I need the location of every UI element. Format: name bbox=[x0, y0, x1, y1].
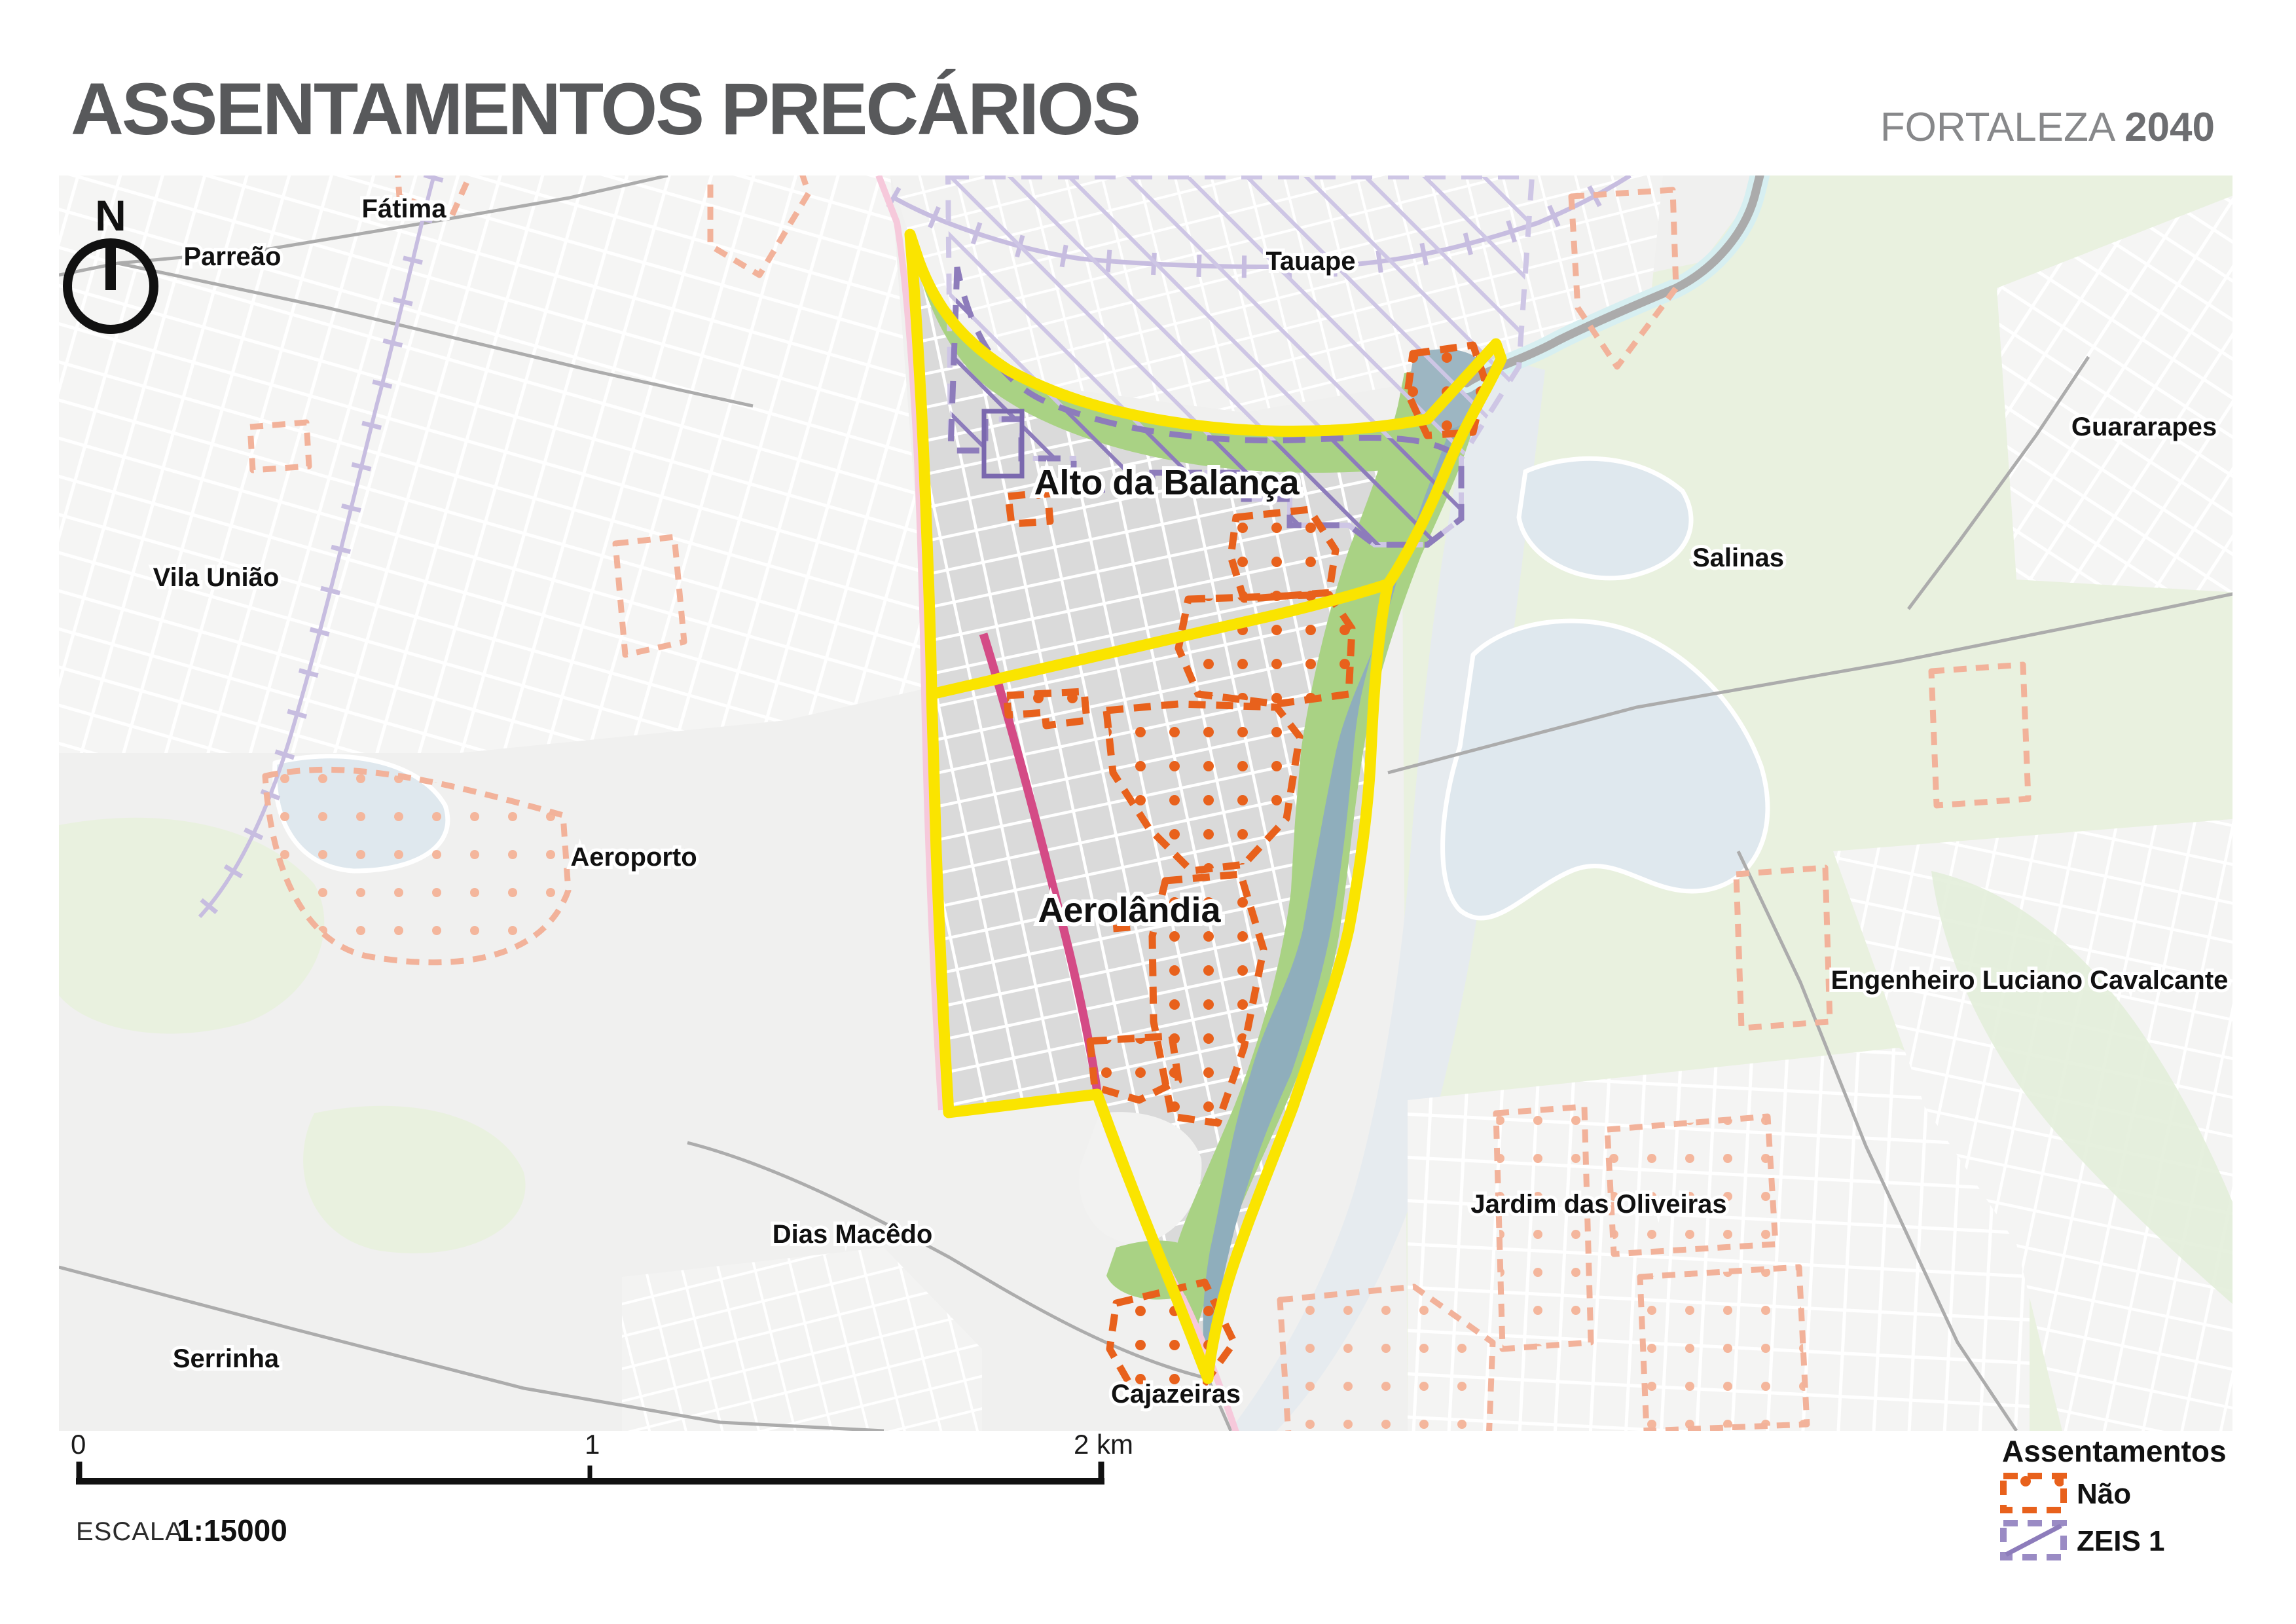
map-label-jardim-das-oliveiras: Jardim das Oliveiras bbox=[1470, 1190, 1726, 1219]
legend-title: Assentamentos bbox=[2002, 1434, 2227, 1468]
legend-swatch-nao bbox=[2003, 1476, 2064, 1510]
brand-name: FORTALEZA bbox=[1880, 105, 2124, 150]
scale-bar: 0 1 2 km ESCALA 1:15000 bbox=[71, 1429, 1133, 1547]
map-label-tauape: Tauape bbox=[1266, 247, 1355, 276]
map-label-cajazeiras: Cajazeiras bbox=[1111, 1380, 1241, 1409]
map-label-aeroporto: Aeroporto bbox=[570, 843, 697, 872]
map-label-parreao: Parreão bbox=[184, 242, 282, 271]
map-label-salinas: Salinas bbox=[1692, 544, 1784, 572]
scale-label-1: 1 bbox=[585, 1429, 600, 1460]
map-label-guararapes: Guararapes bbox=[2071, 413, 2217, 441]
brand-year: 2040 bbox=[2124, 105, 2215, 150]
legend: Assentamentos Não ZEIS 1 bbox=[2002, 1434, 2227, 1557]
page-title: ASSENTAMENTOS PRECÁRIOS bbox=[71, 68, 1139, 150]
scale-label-0: 0 bbox=[71, 1429, 86, 1460]
scale-label-2km: 2 km bbox=[1074, 1429, 1133, 1460]
legend-label-nao: Não bbox=[2077, 1478, 2131, 1510]
map-label-vila-uniao: Vila União bbox=[153, 563, 280, 592]
legend-swatch-zeis1 bbox=[2003, 1523, 2064, 1557]
map-label-dias-macedo: Dias Macêdo bbox=[773, 1220, 933, 1249]
poster-page: Fátima Parreão Tauape Vila União Guarara… bbox=[0, 0, 2296, 1624]
map-label-alto-da-balanca: Alto da Balança bbox=[1034, 463, 1300, 502]
map-poster: Fátima Parreão Tauape Vila União Guarara… bbox=[0, 0, 2296, 1624]
scale-escala-label: ESCALA bbox=[76, 1517, 183, 1546]
legend-label-zeis1: ZEIS 1 bbox=[2077, 1525, 2165, 1557]
map-label-serrinha: Serrinha bbox=[173, 1344, 280, 1373]
map-label-fatima: Fátima bbox=[362, 194, 447, 223]
compass-n-label: N bbox=[95, 191, 126, 240]
map-canvas: Fátima Parreão Tauape Vila União Guarara… bbox=[59, 98, 2239, 1624]
scale-ratio: 1:15000 bbox=[177, 1513, 287, 1547]
brand-logo: FORTALEZA 2040 bbox=[1880, 105, 2215, 150]
map-label-aerolandia: Aerolândia bbox=[1038, 891, 1221, 930]
map-label-engenheiro: Engenheiro Luciano Cavalcante bbox=[1831, 966, 2229, 995]
